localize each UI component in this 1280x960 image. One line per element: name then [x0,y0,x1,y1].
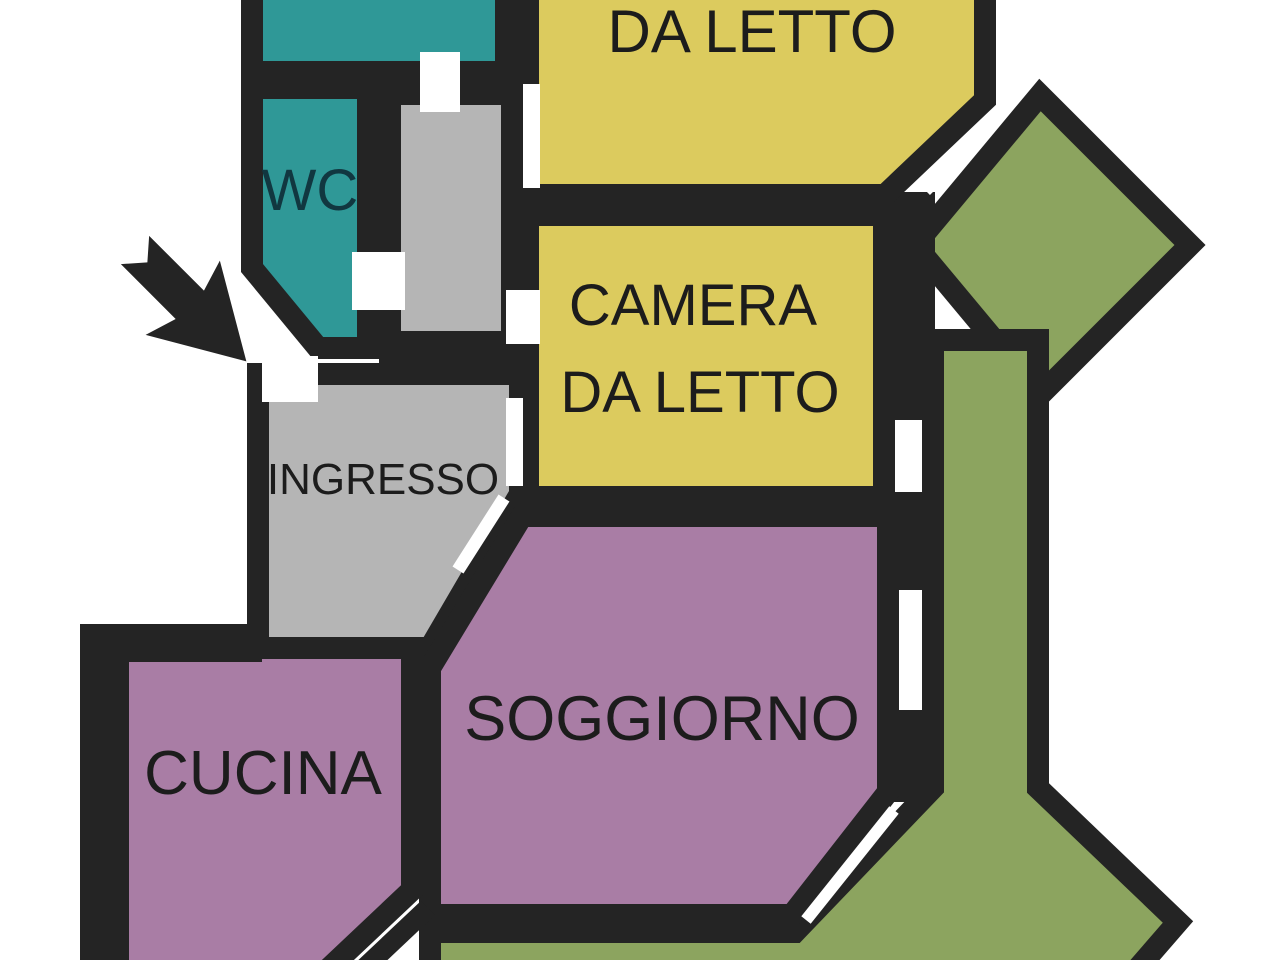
room-living-label: SOGGIORNO [464,684,860,754]
door-hallway-bedroom-top [523,84,540,188]
wall-hallway-entrance-junction [379,345,523,380]
door-hallway-bedroom-main [506,290,540,344]
room-bedroom-main-floor [528,215,884,497]
room-bedroom-main-label-line1: CAMERA [569,273,817,338]
room-bedroom-main-label-line2: DA LETTO [560,360,839,425]
floor-plan-svg: DA LETTO WC CAMERA DA LETTO INGRESSO SOG… [0,0,1280,960]
room-entrance-label: INGRESSO [267,455,499,504]
door-main-entrance-gap [262,356,318,402]
door-entrance-side [506,398,523,486]
door-bathroom-hallway [420,52,460,112]
room-hallway-floor [390,94,512,342]
floor-plan-page: DA LETTO WC CAMERA DA LETTO INGRESSO SOG… [0,0,1280,960]
wall-outer-left [80,624,124,960]
door-wc-hallway [352,252,405,310]
room-wc-label: WC [262,158,359,223]
room-bathroom-top-floor [252,0,506,72]
room-bedroom-top-label: DA LETTO [608,0,897,65]
window-living-balcony [899,590,922,710]
room-kitchen-label: CUCINA [144,739,382,808]
window-bedroom-main-balcony [895,420,922,492]
